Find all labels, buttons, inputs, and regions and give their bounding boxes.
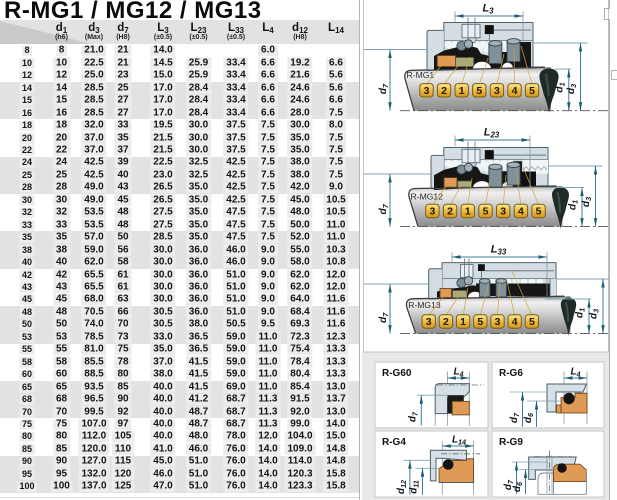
svg-text:R-G4: R-G4 (382, 437, 406, 448)
svg-text:3: 3 (494, 85, 500, 97)
svg-text:R-G9: R-G9 (499, 437, 523, 448)
svg-text:3: 3 (424, 85, 430, 97)
svg-text:3: 3 (429, 206, 435, 218)
svg-text:5: 5 (529, 316, 535, 328)
svg-text:5: 5 (536, 206, 542, 218)
svg-text:4: 4 (518, 206, 524, 218)
svg-text:R-MG13: R-MG13 (408, 300, 441, 310)
svg-text:4: 4 (512, 85, 518, 97)
svg-text:2: 2 (443, 316, 449, 328)
svg-text:R-MG1: R-MG1 (407, 70, 435, 80)
svg-text:1: 1 (459, 85, 465, 97)
svg-text:3: 3 (495, 316, 501, 328)
svg-text:1: 1 (465, 206, 471, 218)
svg-text:2: 2 (441, 85, 447, 97)
svg-text:5: 5 (529, 85, 535, 97)
svg-text:2: 2 (447, 206, 453, 218)
svg-text:5: 5 (483, 206, 489, 218)
svg-text:R-G60: R-G60 (382, 368, 412, 379)
svg-text:5: 5 (476, 85, 482, 97)
svg-text:4: 4 (512, 316, 518, 328)
svg-text:3: 3 (426, 316, 432, 328)
svg-text:5: 5 (477, 316, 483, 328)
svg-text:1: 1 (460, 316, 466, 328)
svg-text:R-G6: R-G6 (499, 368, 523, 379)
svg-text:3: 3 (500, 206, 506, 218)
